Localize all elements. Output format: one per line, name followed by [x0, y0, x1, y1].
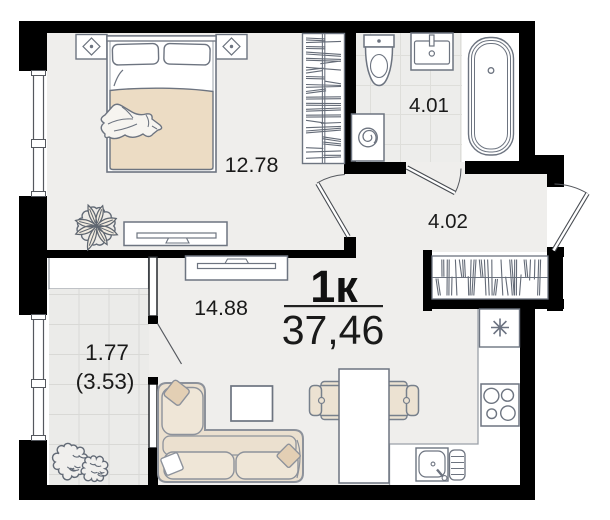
svg-text:12.78: 12.78: [225, 153, 279, 177]
svg-text:4.01: 4.01: [409, 94, 449, 117]
svg-text:1.77: 1.77: [85, 340, 129, 365]
svg-text:(3.53): (3.53): [76, 369, 135, 394]
svg-text:14.88: 14.88: [194, 296, 248, 320]
svg-text:37,46: 37,46: [282, 307, 385, 353]
svg-text:4.02: 4.02: [428, 210, 468, 233]
svg-text:1к: 1к: [310, 261, 358, 312]
